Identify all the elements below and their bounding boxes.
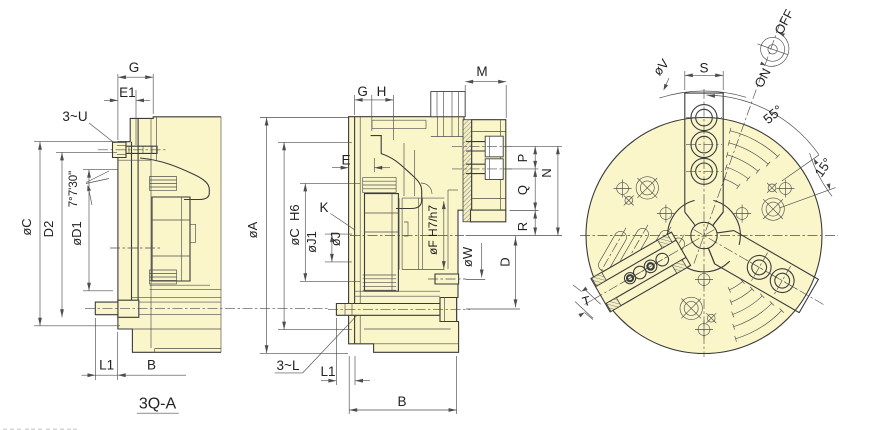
svg-text:3~L: 3~L <box>277 358 300 373</box>
svg-text:øJ1: øJ1 <box>304 231 319 253</box>
svg-text:B: B <box>147 358 156 373</box>
svg-text:Q: Q <box>515 185 530 195</box>
svg-text:3Q-A: 3Q-A <box>139 396 177 413</box>
svg-text:G: G <box>129 60 140 75</box>
svg-text:P: P <box>515 154 530 163</box>
svg-text:S: S <box>699 61 708 76</box>
svg-text:M: M <box>476 64 487 79</box>
svg-text:H: H <box>377 84 387 99</box>
svg-text:øC H6: øC H6 <box>287 204 302 245</box>
svg-text:E1: E1 <box>119 85 136 100</box>
svg-text:øF H7/h7: øF H7/h7 <box>426 205 440 255</box>
svg-text:L1: L1 <box>99 358 114 373</box>
svg-text:B: B <box>397 394 406 409</box>
svg-text:E: E <box>341 153 350 168</box>
svg-text:3~U: 3~U <box>62 109 87 124</box>
svg-text:N: N <box>539 168 554 177</box>
svg-text:K: K <box>319 200 328 215</box>
svg-text:øW: øW <box>460 246 475 267</box>
svg-text:7°7'30": 7°7'30" <box>68 171 80 207</box>
svg-text:øC: øC <box>19 218 34 235</box>
svg-text:D: D <box>498 257 513 266</box>
svg-text:D2: D2 <box>41 221 56 238</box>
svg-text:L1: L1 <box>320 364 335 379</box>
svg-text:øJ: øJ <box>328 232 343 246</box>
svg-text:øD1: øD1 <box>69 221 84 246</box>
svg-text:øA: øA <box>245 221 260 238</box>
svg-text:G: G <box>357 84 368 99</box>
svg-text:R: R <box>515 222 530 231</box>
